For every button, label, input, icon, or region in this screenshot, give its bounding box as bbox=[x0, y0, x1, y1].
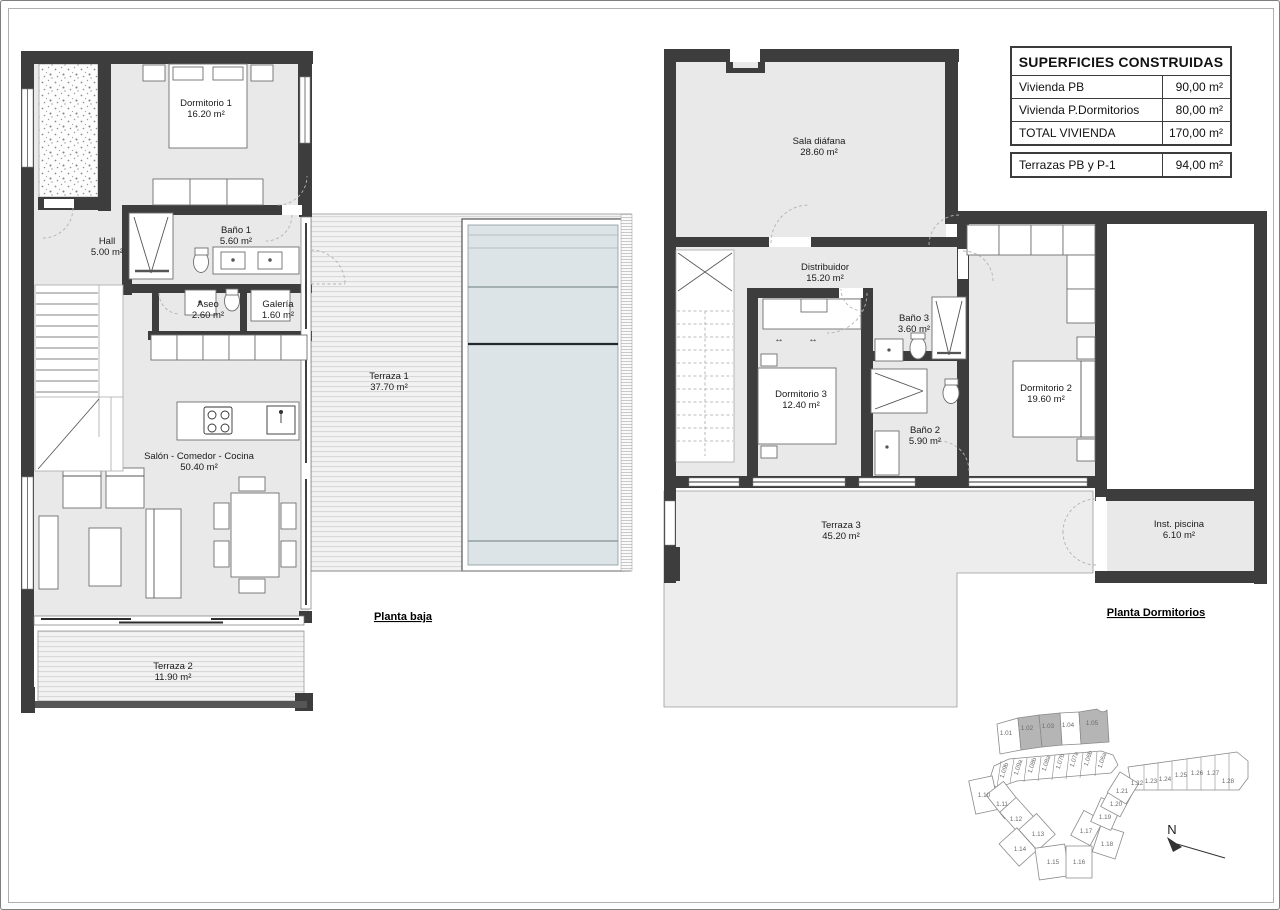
armchair bbox=[106, 468, 144, 508]
site-plot-label: 1.14 bbox=[1014, 846, 1027, 853]
north-arrow: N bbox=[1167, 822, 1225, 858]
table-cell-label: Terrazas PB y P-1 bbox=[1012, 154, 1162, 176]
sofa bbox=[146, 509, 181, 598]
site-plot-label: 1.17 bbox=[1080, 828, 1093, 835]
sink bbox=[875, 431, 899, 475]
room-label-terraza-1: Terraza 137.70 m² bbox=[369, 371, 409, 393]
site-plot-label: 1.18 bbox=[1101, 841, 1114, 848]
toilet bbox=[910, 337, 926, 359]
site-plot bbox=[997, 709, 1109, 754]
room-label-terraza-2: Terraza 211.90 m² bbox=[153, 661, 193, 683]
table-cell-value: 94,00 m² bbox=[1162, 154, 1230, 176]
site-plot-label: 1.21 bbox=[1116, 788, 1129, 795]
hanger-arrow-icon: ↔ bbox=[774, 334, 784, 345]
room-label-galeria: Galería1.60 m² bbox=[262, 299, 294, 321]
site-plot-label: 1.23 bbox=[1145, 778, 1158, 785]
armchair bbox=[63, 468, 101, 508]
caption-planta-dormitorios: Planta Dormitorios bbox=[1107, 607, 1205, 619]
room-label-dormitorio-3: Dormitorio 312.40 m² bbox=[775, 389, 827, 411]
room-label-terraza-3: Terraza 345.20 m² bbox=[821, 520, 861, 542]
areas-table-title: SUPERFICIES CONSTRUIDAS bbox=[1012, 48, 1230, 75]
areas-summary-table: SUPERFICIES CONSTRUIDAS Vivienda PB 90,0… bbox=[1010, 46, 1232, 178]
table-row: Vivienda PB 90,00 m² bbox=[1012, 75, 1230, 98]
site-plot-label: 1.16 bbox=[1073, 859, 1086, 866]
site-plan: 1.01 1.02 1.03 1.04 1.05 1.09b 1.09a 1.0… bbox=[969, 709, 1248, 880]
caption-planta-baja: Planta baja bbox=[374, 611, 433, 623]
north-label: N bbox=[1167, 822, 1176, 837]
bench bbox=[39, 516, 58, 589]
site-plot-label: 1.26 bbox=[1191, 770, 1204, 777]
terraza-3-deck bbox=[664, 491, 1093, 707]
room-label-dormitorio-2: Dormitorio 219.60 m² bbox=[1020, 383, 1072, 405]
site-plot-label: 1.12 bbox=[1010, 816, 1023, 823]
table-row: Vivienda P.Dormitorios 80,00 m² bbox=[1012, 98, 1230, 121]
site-plot-label: 1.20 bbox=[1110, 801, 1123, 808]
wardrobe bbox=[153, 179, 190, 205]
room-label-dormitorio-1: Dormitorio 116.20 m² bbox=[180, 98, 232, 120]
dining-table bbox=[231, 493, 279, 577]
ground-floor-plan: Dormitorio 116.20 m² Hall5.00 m² Baño 15… bbox=[21, 51, 632, 713]
hanger-arrow-icon: ↔ bbox=[808, 334, 818, 345]
toilet bbox=[943, 383, 959, 404]
site-plot-label: 1.19 bbox=[1099, 814, 1112, 821]
site-plot-label: 1.24 bbox=[1159, 776, 1172, 783]
shower bbox=[871, 369, 927, 413]
table-cell-label: Vivienda P.Dormitorios bbox=[1012, 99, 1162, 121]
table-cell-label: TOTAL VIVIENDA bbox=[1012, 122, 1162, 144]
pool-edge-strip bbox=[621, 214, 632, 571]
site-plot-label: 1.13 bbox=[1032, 831, 1045, 838]
site-plot-label: 1.25 bbox=[1175, 772, 1188, 779]
room-label-distribuidor: Distribuidor15.20 m² bbox=[801, 262, 849, 284]
areas-table-main: SUPERFICIES CONSTRUIDAS Vivienda PB 90,0… bbox=[1010, 46, 1232, 146]
site-plot-label: 1.01 bbox=[1000, 730, 1013, 737]
site-plot-label: 1.28 bbox=[1222, 778, 1235, 785]
site-plot-label: 1.02 bbox=[1021, 725, 1034, 732]
room-label-bano-2: Baño 25.90 m² bbox=[909, 425, 941, 447]
site-plot-label: 1.04 bbox=[1062, 722, 1075, 729]
site-plot-label: 1.05 bbox=[1086, 720, 1099, 727]
room-label-bano-1: Baño 15.60 m² bbox=[220, 225, 252, 247]
site-plot-label: 1.15 bbox=[1047, 859, 1060, 866]
areas-table-footer: Terrazas PB y P-1 94,00 m² bbox=[1010, 152, 1232, 178]
courtyard bbox=[39, 64, 98, 197]
site-plot-label: 1.03 bbox=[1042, 723, 1055, 730]
site-plot-label: 1.22 bbox=[1131, 780, 1144, 787]
site-plot-label: 1.27 bbox=[1207, 770, 1220, 777]
table-cell-value: 90,00 m² bbox=[1162, 76, 1230, 98]
floor-plan-sheet: Dormitorio 116.20 m² Hall5.00 m² Baño 15… bbox=[0, 0, 1280, 910]
site-plot-label: 1.10 bbox=[978, 792, 991, 799]
table-cell-value: 170,00 m² bbox=[1162, 122, 1230, 144]
table-cell-value: 80,00 m² bbox=[1162, 99, 1230, 121]
room-label-bano-3: Baño 33.60 m² bbox=[898, 313, 930, 335]
staircase bbox=[676, 250, 734, 462]
site-plot-label: 1.11 bbox=[996, 801, 1008, 808]
coffee-table bbox=[89, 528, 121, 586]
table-cell-label: Vivienda PB bbox=[1012, 76, 1162, 98]
staircase bbox=[35, 285, 123, 471]
table-row: Terrazas PB y P-1 94,00 m² bbox=[1012, 154, 1230, 176]
terrace2-bottom-wall bbox=[35, 701, 307, 708]
table-row: TOTAL VIVIENDA 170,00 m² bbox=[1012, 121, 1230, 144]
